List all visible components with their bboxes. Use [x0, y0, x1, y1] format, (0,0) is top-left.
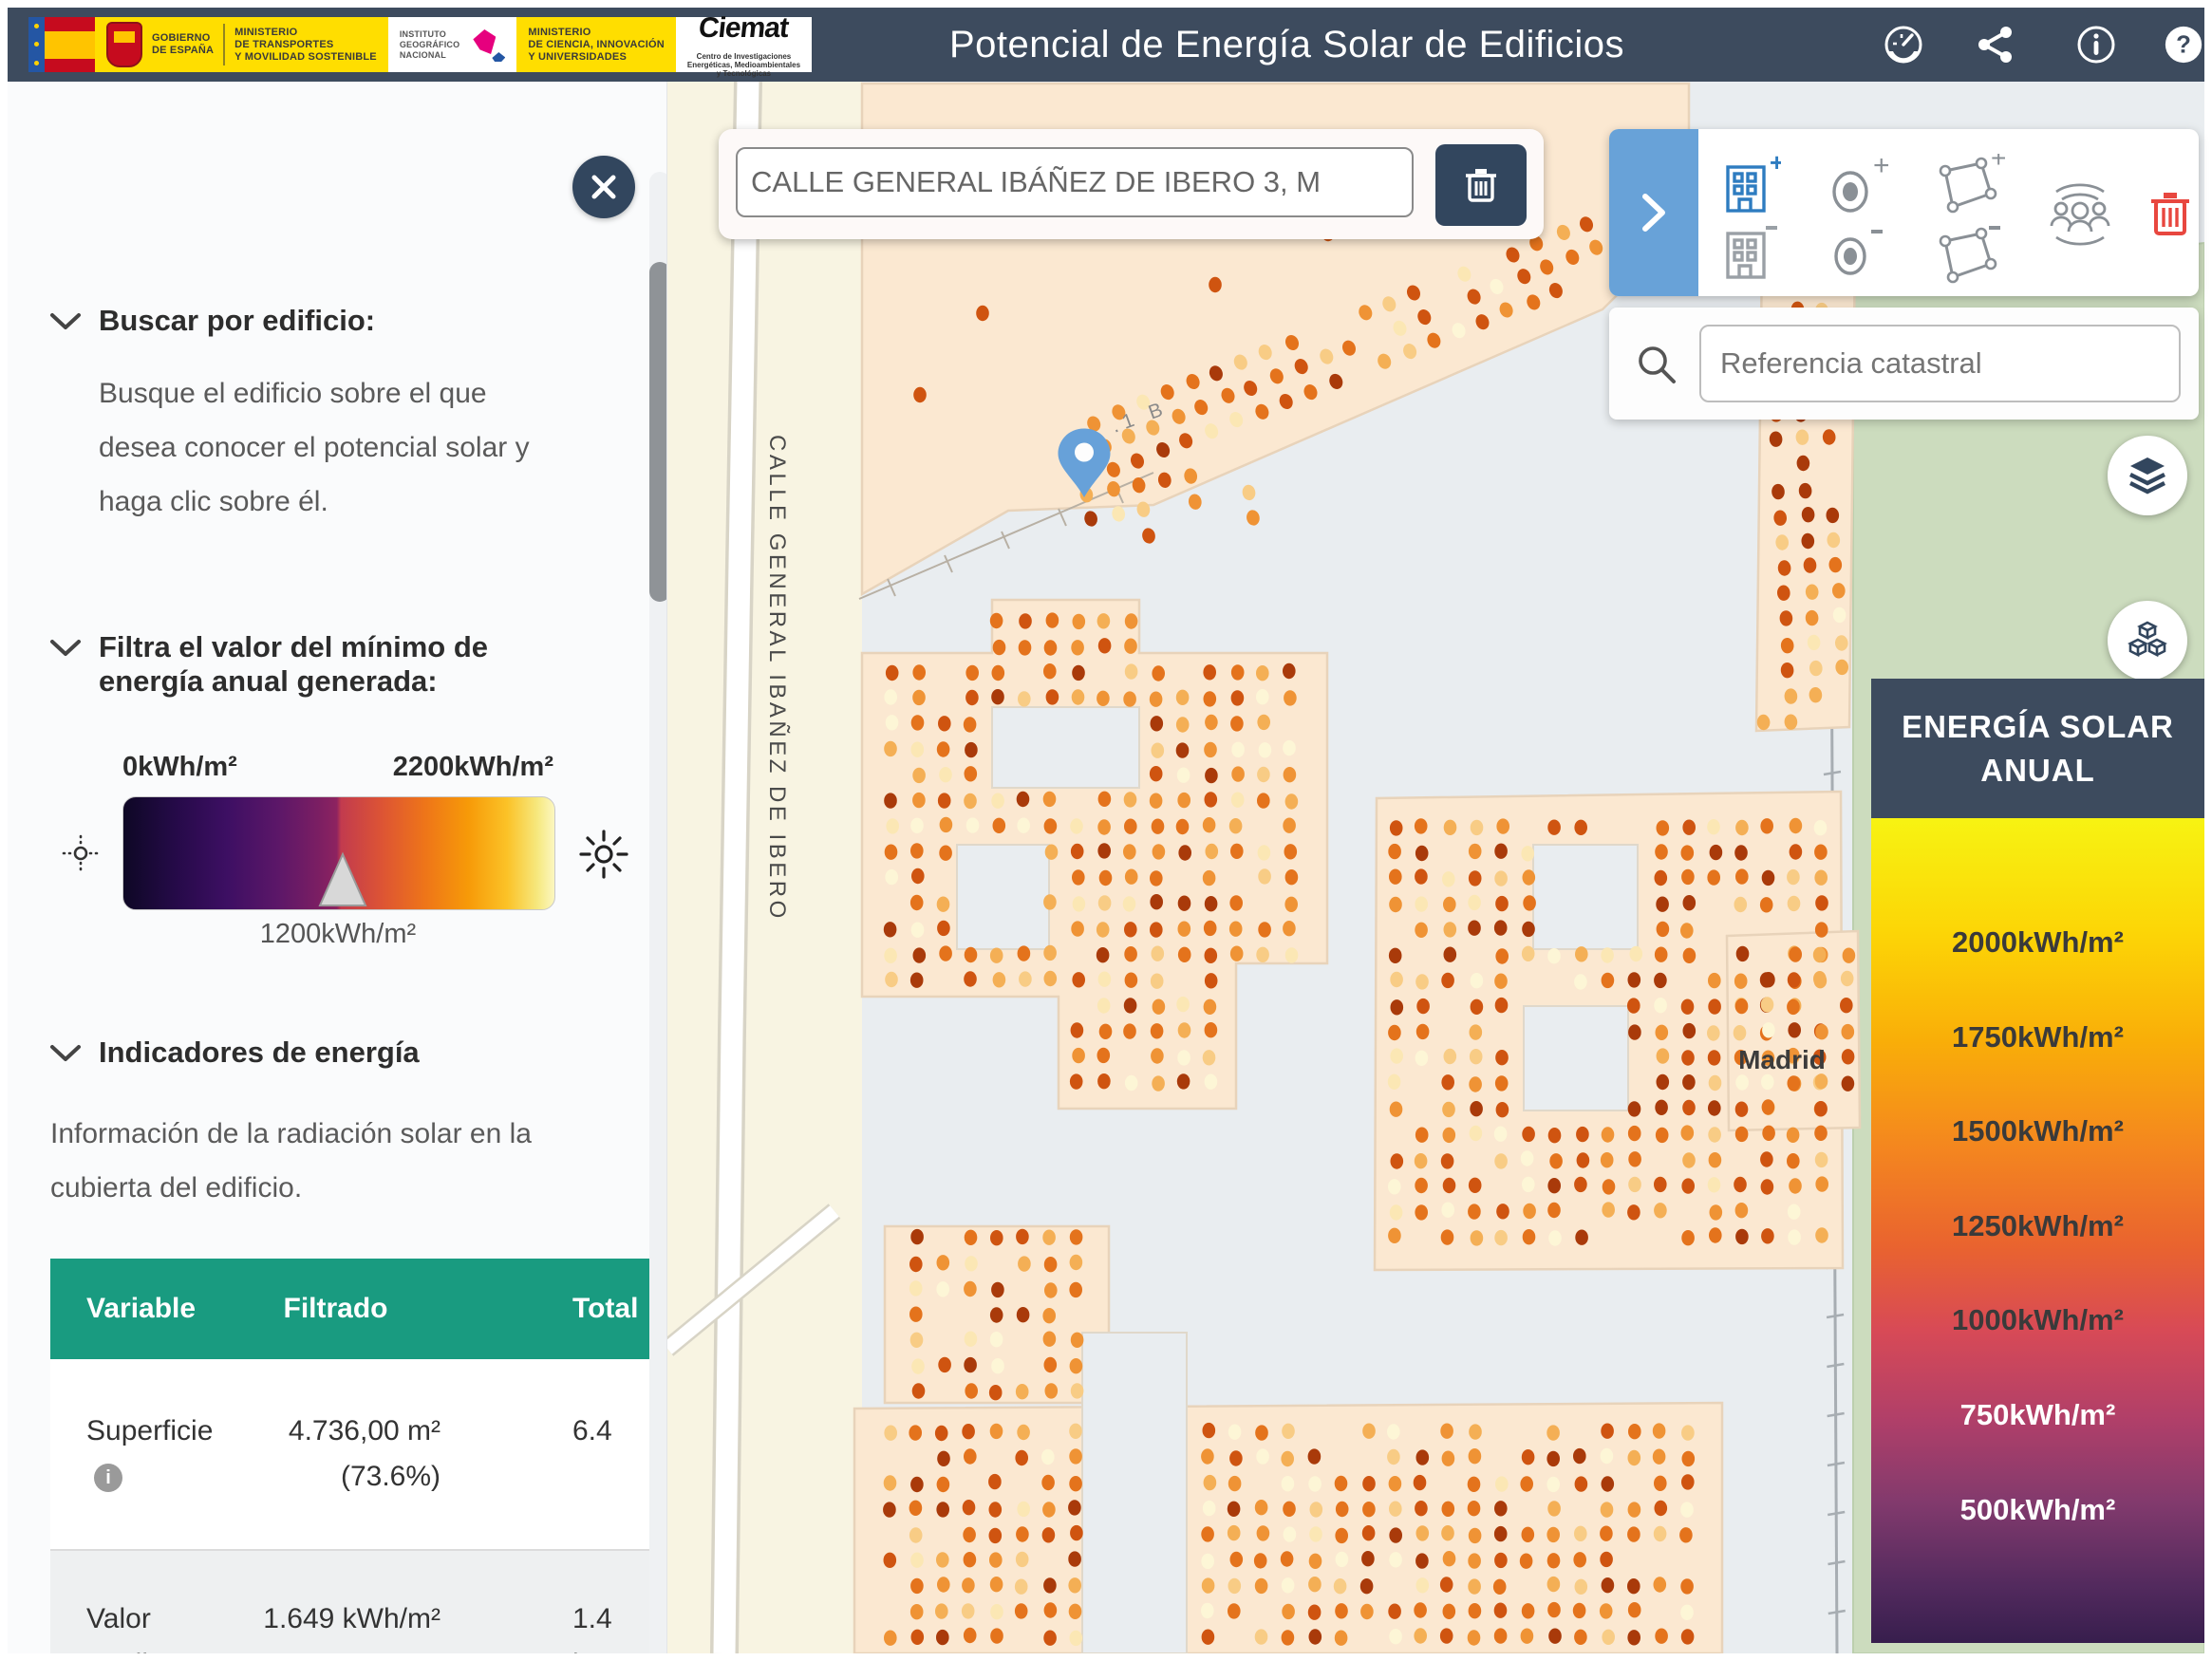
info-button[interactable] — [2075, 24, 2117, 65]
add-circle-selection-button[interactable]: + — [1826, 158, 1890, 216]
search-icon — [1634, 342, 1679, 387]
ciencia-logo: MINISTERIO DE CIENCIA, INNOVACIÓN Y UNIV… — [516, 17, 676, 72]
chevron-down-icon — [49, 312, 82, 331]
section-buscar-title: Buscar por edificio: — [99, 304, 375, 338]
filter-max-label: 2200kWh/m² — [122, 752, 553, 783]
question-icon: ? — [2163, 23, 2204, 66]
col-filtrado: Filtrado — [231, 1293, 454, 1325]
legend-label: 1750kWh/m² — [1871, 1020, 2204, 1054]
close-sidebar-button[interactable] — [572, 156, 635, 218]
svg-text:?: ? — [2176, 32, 2191, 59]
sun-small-icon — [61, 833, 101, 873]
ciemat-logo: Ciemat Centro de Investigaciones Energét… — [676, 17, 812, 72]
address-search-panel — [719, 129, 1544, 239]
layers-icon — [2126, 454, 2169, 497]
section-filtra-title: Filtra el valor del mínimo deenergía anu… — [99, 630, 488, 699]
chevron-down-icon — [49, 639, 82, 658]
layers-button[interactable] — [2108, 436, 2187, 515]
logo-band: GOBIERNO DE ESPAÑA MINISTERIO DE TRANSPO… — [28, 17, 812, 72]
chevron-down-icon — [49, 1044, 82, 1063]
help-button[interactable]: ? — [2163, 24, 2204, 65]
buscar-description: Busque el edificio sobre el que desea co… — [99, 366, 564, 529]
3d-blocks-button[interactable] — [2108, 601, 2187, 681]
selection-toolbar: + + + — [1609, 129, 2199, 296]
share-icon — [1976, 25, 2015, 65]
share-button[interactable] — [1975, 24, 2016, 65]
remove-circle-selection-button[interactable] — [1826, 224, 1890, 283]
app-header: GOBIERNO DE ESPAÑA MINISTERIO DE TRANSPO… — [8, 8, 2204, 82]
section-indicadores-title: Indicadores de energía — [99, 1036, 420, 1070]
gobierno-logo: GOBIERNO DE ESPAÑA MINISTERIO DE TRANSPO… — [95, 17, 388, 72]
clear-search-button[interactable] — [1435, 144, 1527, 226]
section-filtra-header[interactable]: Filtra el valor del mínimo deenergía anu… — [49, 630, 488, 699]
page-title: Potencial de Energía Solar de Edificios — [949, 8, 1624, 82]
solar-app: GOBIERNO DE ESPAÑA MINISTERIO DE TRANSPO… — [0, 0, 2212, 1661]
speedometer-icon — [1883, 24, 1924, 65]
add-building-button[interactable]: + — [1718, 156, 1781, 215]
collapse-toolbar-button[interactable] — [1609, 129, 1698, 296]
col-variable: Variable — [50, 1293, 231, 1325]
legend-label: 500kWh/m² — [1871, 1493, 2204, 1527]
cadastral-ref-input[interactable] — [1699, 325, 2181, 402]
legend-label: 750kWh/m² — [1871, 1398, 2204, 1432]
sun-large-icon — [577, 828, 630, 881]
svg-text:+: + — [1991, 154, 2006, 173]
info-icon — [2075, 24, 2117, 65]
legend-title: ENERGÍA SOLARANUAL — [1871, 679, 2204, 818]
svg-text:+: + — [1770, 156, 1781, 177]
section-buscar-header[interactable]: Buscar por edificio: — [49, 304, 375, 338]
cubes-icon — [2126, 619, 2169, 663]
remove-building-button[interactable] — [1718, 220, 1781, 283]
coat-of-arms-icon — [106, 22, 142, 67]
slider-handle[interactable] — [316, 850, 369, 909]
indicadores-description: Información de la radiación solar en la … — [50, 1107, 639, 1215]
energy-table: Variable Filtrado Total Superficiei 4.73… — [50, 1259, 667, 1653]
legend-label: 1000kWh/m² — [1871, 1303, 2204, 1337]
filter-current-label: 1200kWh/m² — [122, 919, 553, 950]
trash-icon — [1464, 166, 1498, 204]
delete-selection-button[interactable] — [2148, 188, 2192, 239]
legend-gradient: 2000kWh/m²1750kWh/m²1500kWh/m²1250kWh/m²… — [1871, 818, 2204, 1643]
community-selection-button[interactable] — [2041, 178, 2119, 251]
dashboard-button[interactable] — [1883, 24, 1924, 65]
legend-label: 1500kWh/m² — [1871, 1114, 2204, 1148]
table-row-valor-medio: Valor medio 1.649 kWh/m² 1.4 kW — [50, 1551, 667, 1653]
street-label: CALLE GENERAL IBAÑEZ DE IBERO — [764, 435, 790, 922]
legend-label: 1250kWh/m² — [1871, 1209, 2204, 1243]
chevron-right-icon — [1638, 191, 1670, 234]
close-icon — [590, 173, 618, 201]
col-total: Total — [454, 1293, 667, 1325]
info-icon[interactable]: i — [94, 1464, 122, 1492]
city-label: Madrid — [1738, 1045, 1826, 1074]
gobierno-line: GOBIERNO — [152, 32, 214, 45]
vertical-scrollbar-thumb[interactable] — [649, 262, 667, 602]
ign-logo: INSTITUTO GEOGRÁFICO NACIONAL — [388, 17, 517, 72]
remove-polygon-selection-button[interactable] — [1932, 222, 2006, 285]
address-search-input[interactable] — [736, 147, 1414, 217]
ign-mark-icon — [467, 26, 505, 64]
spain-flag-logo — [28, 17, 95, 72]
cadastral-search-panel — [1609, 308, 2199, 420]
legend-label: 2000kWh/m² — [1871, 925, 2204, 960]
eu-flag-strip — [28, 17, 45, 72]
section-indicadores-header[interactable]: Indicadores de energía — [49, 1036, 420, 1070]
table-row-superficie: Superficiei 4.736,00 m² (73.6%) 6.4 — [50, 1359, 667, 1551]
add-polygon-selection-button[interactable]: + — [1932, 154, 2006, 218]
sidebar-panel: Buscar por edificio: Busque el edificio … — [8, 82, 667, 1653]
svg-text:+: + — [1873, 158, 1890, 181]
table-header-row: Variable Filtrado Total — [50, 1259, 667, 1359]
